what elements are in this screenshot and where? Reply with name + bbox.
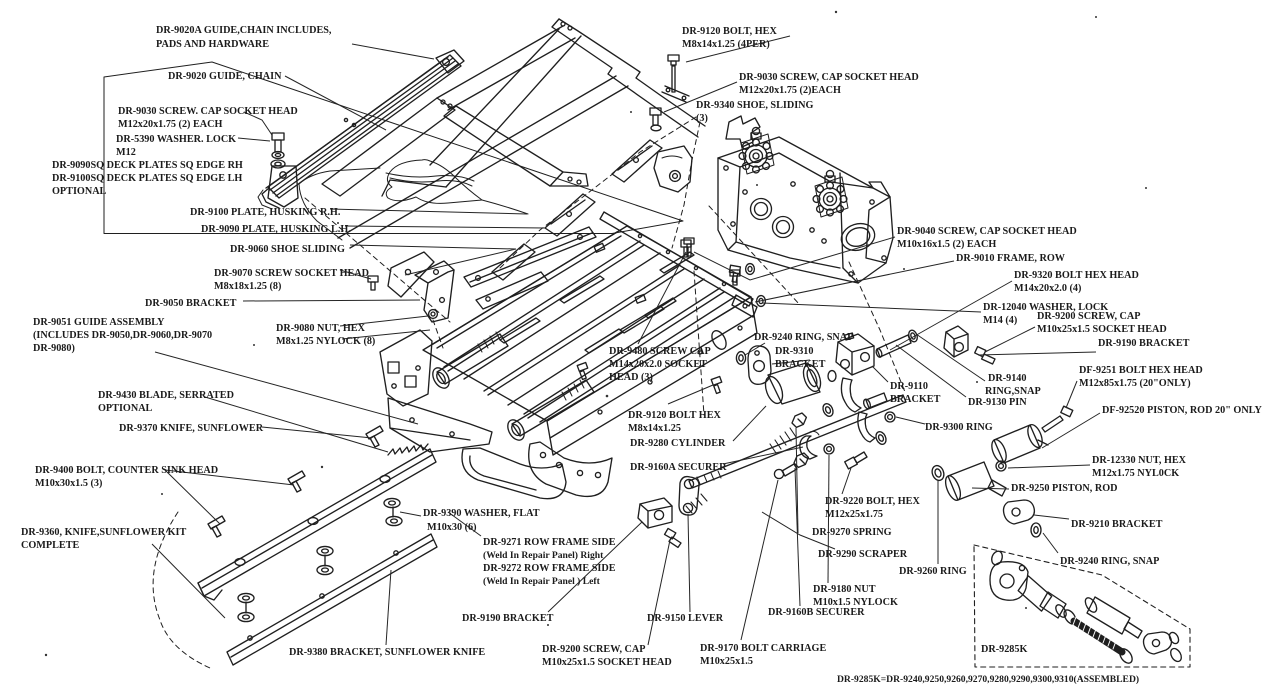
svg-text:DR-9320 BOLT HEX HEAD: DR-9320 BOLT HEX HEAD [1014, 270, 1139, 281]
svg-text:DR-9070 SCREW SOCKET HEAD: DR-9070 SCREW SOCKET HEAD [214, 268, 369, 279]
svg-text:DR-12330 NUT, HEX: DR-12330 NUT, HEX [1092, 455, 1187, 466]
svg-text:DR-9051 GUIDE ASSEMBLY: DR-9051 GUIDE ASSEMBLY [33, 317, 165, 328]
svg-text:M10x25x1.5: M10x25x1.5 [700, 656, 753, 667]
svg-text:DR-9060 SHOE SLIDING: DR-9060 SHOE SLIDING [230, 244, 345, 255]
svg-text:DR-5390 WASHER. LOCK: DR-5390 WASHER. LOCK [116, 134, 236, 145]
svg-text:DR-9050 BRACKET: DR-9050 BRACKET [145, 298, 237, 309]
svg-text:M12x20x1.75 (2)EACH: M12x20x1.75 (2)EACH [739, 85, 841, 96]
svg-text:DR-9430 BLADE, SERRATED: DR-9430 BLADE, SERRATED [98, 390, 234, 401]
svg-text:DR-9100 PLATE, HUSKING R.H.: DR-9100 PLATE, HUSKING R.H. [190, 207, 341, 218]
svg-text:DR-9020 GUIDE, CHAIN: DR-9020 GUIDE, CHAIN [168, 71, 282, 82]
svg-text:DR-9190 BRACKET: DR-9190 BRACKET [1098, 338, 1190, 349]
svg-text:DR-9300 RING: DR-9300 RING [925, 422, 993, 433]
svg-text:DR-9480 SCREW CAP: DR-9480 SCREW CAP [609, 346, 711, 357]
svg-text:M8x18x1.25 (8): M8x18x1.25 (8) [214, 281, 281, 292]
svg-text:DR-9140: DR-9140 [988, 373, 1026, 384]
svg-text:DR-9130 PIN: DR-9130 PIN [968, 397, 1027, 408]
svg-text:DR-9100SQ DECK PLATES SQ EDGE: DR-9100SQ DECK PLATES SQ EDGE LH [52, 173, 242, 184]
svg-text:(Weld In Repair Panel ) Left: (Weld In Repair Panel ) Left [483, 576, 601, 587]
svg-text:DR-9285K: DR-9285K [981, 644, 1027, 655]
svg-text:OPTIONAL: OPTIONAL [98, 403, 153, 414]
svg-text:DR-9020A GUIDE,CHAIN INCLUDES,: DR-9020A GUIDE,CHAIN INCLUDES, [156, 25, 332, 36]
svg-text:M10x25x1.5 SOCKET HEAD: M10x25x1.5 SOCKET HEAD [1037, 324, 1167, 335]
svg-text:M12x1.75 NYL0CK: M12x1.75 NYL0CK [1092, 468, 1179, 479]
svg-text:DR-9090 PLATE, HUSKING L.H.: DR-9090 PLATE, HUSKING L.H. [201, 224, 351, 235]
svg-text:PADS AND HARDWARE: PADS AND HARDWARE [156, 39, 269, 50]
svg-text:BRACKET: BRACKET [890, 394, 941, 405]
svg-text:DR-9160A SECURER: DR-9160A SECURER [630, 462, 727, 473]
svg-text:M10x30 (6): M10x30 (6) [427, 522, 477, 533]
svg-text:DR-9120 BOLT, HEX: DR-9120 BOLT, HEX [682, 26, 777, 37]
svg-text:DR-9110: DR-9110 [890, 381, 928, 392]
svg-text:DR-9380 BRACKET, SUNFLOWER KNI: DR-9380 BRACKET, SUNFLOWER KNIFE [289, 647, 485, 658]
svg-text:DR-9360, KNIFE,SUNFLOWER KIT: DR-9360, KNIFE,SUNFLOWER KIT [21, 527, 186, 538]
svg-text:DR-9310: DR-9310 [775, 346, 813, 357]
svg-text:DR-9210 BRACKET: DR-9210 BRACKET [1071, 519, 1163, 530]
svg-text:DR-9340 SHOE, SLIDING: DR-9340 SHOE, SLIDING [696, 100, 814, 111]
svg-text:DR-9200 SCREW, CAP: DR-9200 SCREW, CAP [542, 644, 646, 655]
svg-text:M8x14x1.25: M8x14x1.25 [628, 423, 681, 434]
svg-text:DR-9270 SPRING: DR-9270 SPRING [812, 527, 892, 538]
svg-text:DR-9280 CYLINDER: DR-9280 CYLINDER [630, 438, 726, 449]
svg-text:DR-9190 BRACKET: DR-9190 BRACKET [462, 613, 554, 624]
svg-text:M12: M12 [116, 147, 136, 158]
svg-text:DF-92520 PISTON, ROD 20" ONLY: DF-92520 PISTON, ROD 20" ONLY [1102, 405, 1263, 416]
svg-text:DR-9271 ROW FRAME SIDE: DR-9271 ROW FRAME SIDE [483, 537, 616, 548]
svg-text:M10x25x1.5 SOCKET HEAD: M10x25x1.5 SOCKET HEAD [542, 657, 672, 668]
svg-text:DR-9090SQ DECK PLATES SQ EDGE: DR-9090SQ DECK PLATES SQ EDGE RH [52, 160, 243, 171]
svg-text:DR-9040 SCREW, CAP SOCKET HEAD: DR-9040 SCREW, CAP SOCKET HEAD [897, 226, 1077, 237]
svg-text:M12x25x1.75: M12x25x1.75 [825, 509, 883, 520]
svg-text:DR-9160B SECURER: DR-9160B SECURER [768, 607, 865, 618]
svg-text:DR-9220 BOLT, HEX: DR-9220 BOLT, HEX [825, 496, 920, 507]
svg-text:M8x14x1.25 (4PER): M8x14x1.25 (4PER) [682, 39, 770, 50]
svg-text:DR-9010 FRAME, ROW: DR-9010 FRAME, ROW [956, 253, 1066, 264]
svg-text:COMPLETE: COMPLETE [21, 540, 80, 551]
svg-text:DR-9150 LEVER: DR-9150 LEVER [647, 613, 724, 624]
svg-text:DF-9251 BOLT HEX HEAD: DF-9251 BOLT HEX HEAD [1079, 365, 1203, 376]
svg-text:DR-9290 SCRAPER: DR-9290 SCRAPER [818, 549, 908, 560]
svg-text:(3): (3) [696, 113, 708, 124]
svg-text:M14x20x2.0 (4): M14x20x2.0 (4) [1014, 283, 1081, 294]
svg-text:M10x30x1.5 (3): M10x30x1.5 (3) [35, 478, 102, 489]
svg-text:M8x1.25 NYLOCK (8): M8x1.25 NYLOCK (8) [276, 336, 375, 347]
svg-text:(INCLUDES DR-9050,DR-9060,DR-9: (INCLUDES DR-9050,DR-9060,DR-9070 [33, 330, 212, 341]
svg-text:BRACKET: BRACKET [775, 359, 826, 370]
svg-text:DR-9080): DR-9080) [33, 343, 75, 354]
svg-text:DR-9250 PISTON, ROD: DR-9250 PISTON, ROD [1011, 483, 1118, 494]
svg-text:DR-9030 SCREW. CAP SOCKET HEAD: DR-9030 SCREW. CAP SOCKET HEAD [118, 106, 298, 117]
svg-text:DR-9272 ROW FRAME SIDE: DR-9272 ROW FRAME SIDE [483, 563, 616, 574]
svg-text:M14x20x2.0 SOCKET: M14x20x2.0 SOCKET [609, 359, 707, 370]
svg-text:HEAD (3): HEAD (3) [609, 372, 653, 383]
svg-text:DR-9200 SCREW, CAP: DR-9200 SCREW, CAP [1037, 311, 1141, 322]
svg-text:(Weld In Repair Panel) Right: (Weld In Repair Panel) Right [483, 550, 604, 561]
svg-text:M14 (4): M14 (4) [983, 315, 1017, 326]
svg-text:RING,SNAP: RING,SNAP [985, 386, 1041, 397]
svg-text:DR-9240 RING, SNAP: DR-9240 RING, SNAP [1060, 556, 1159, 567]
svg-text:DR-9080 NUT, HEX: DR-9080 NUT, HEX [276, 323, 366, 334]
svg-text:DR-9390 WASHER, FLAT: DR-9390 WASHER, FLAT [423, 508, 540, 519]
svg-text:DR-9170 BOLT CARRIAGE: DR-9170 BOLT CARRIAGE [700, 643, 826, 654]
svg-text:M10x16x1.5 (2) EACH: M10x16x1.5 (2) EACH [897, 239, 996, 250]
svg-text:DR-9180 NUT: DR-9180 NUT [813, 584, 876, 595]
svg-text:DR-9400 BOLT, COUNTER SINK HEA: DR-9400 BOLT, COUNTER SINK HEAD [35, 465, 218, 476]
svg-text:DR-9260 RING: DR-9260 RING [899, 566, 967, 577]
svg-text:DR-9030 SCREW, CAP SOCKET HEAD: DR-9030 SCREW, CAP SOCKET HEAD [739, 72, 919, 83]
svg-text:OPTIONAL: OPTIONAL [52, 186, 107, 197]
svg-text:DR-9240 RING, SNAP: DR-9240 RING, SNAP [754, 332, 853, 343]
svg-text:M12x20x1.75 (2) EACH: M12x20x1.75 (2) EACH [118, 119, 222, 130]
svg-text:DR-9370 KNIFE, SUNFLOWER: DR-9370 KNIFE, SUNFLOWER [119, 423, 264, 434]
svg-text:DR-9285K=DR-9240,9250,9260,927: DR-9285K=DR-9240,9250,9260,9270,9280,929… [837, 674, 1139, 685]
svg-text:M12x85x1.75 (20"ONLY): M12x85x1.75 (20"ONLY) [1079, 378, 1191, 389]
svg-text:DR-9120 BOLT HEX: DR-9120 BOLT HEX [628, 410, 721, 421]
